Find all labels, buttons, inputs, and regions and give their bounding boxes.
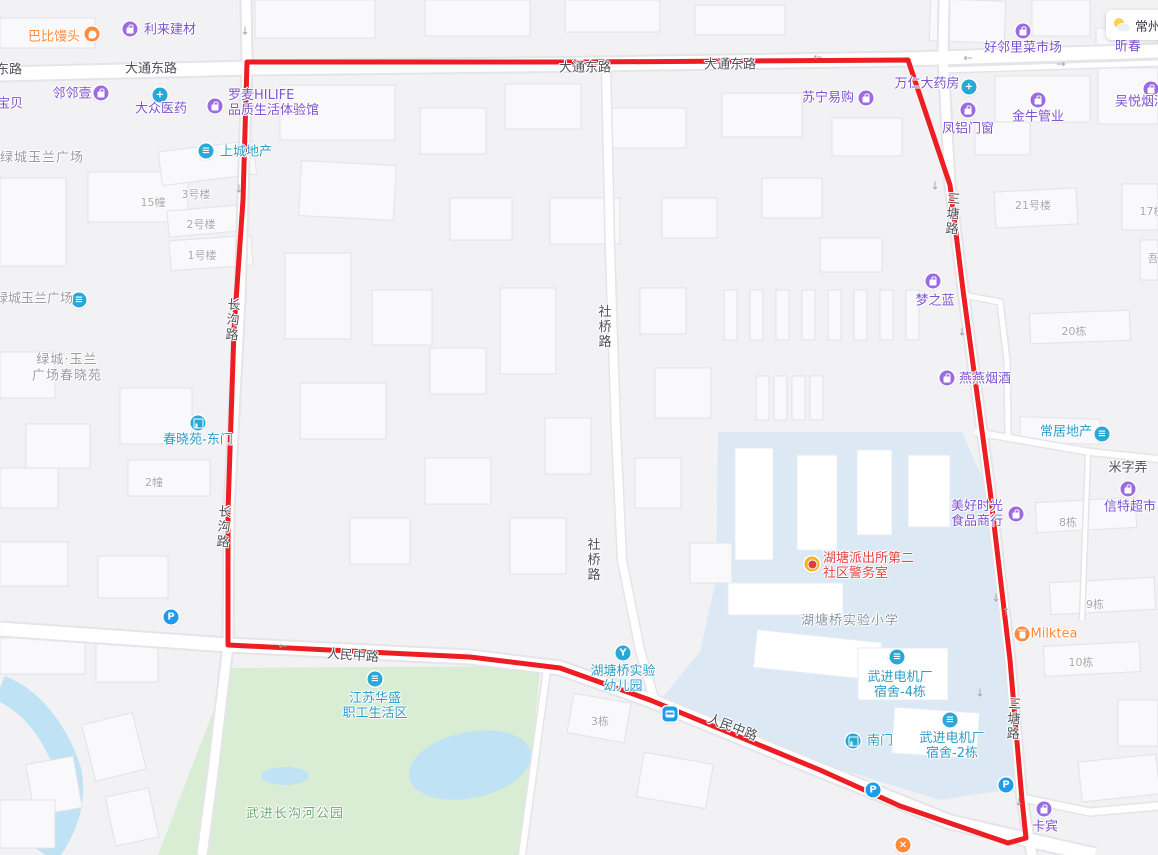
jinniu-guanye-icon[interactable] — [1031, 93, 1046, 108]
jiangsu-huasheng-icon[interactable]: ≡ — [368, 672, 383, 687]
road-label: 大通东路 — [704, 54, 756, 73]
sun-cloud-icon — [1114, 18, 1130, 32]
wanren-dayaofang-label[interactable]: 万仁大药房 — [894, 77, 959, 92]
closed-marker-icon[interactable]: × — [896, 838, 911, 853]
road-label: 人民中路 — [326, 643, 379, 666]
building-label: 1号楼 — [188, 247, 217, 263]
map-canvas[interactable]: 东路大通东路大通东路大通东路人民中路人民中路社桥路社桥路长沟路长沟路三塘路三塘路… — [0, 0, 1158, 855]
wujin-dianjichang-sushe4-icon[interactable]: ≡ — [890, 650, 905, 665]
yanyan-yanjiu-icon[interactable] — [940, 371, 955, 386]
hutangqiao-youeryuan-icon[interactable]: Y — [616, 646, 631, 661]
building-label: 8栋 — [1059, 514, 1077, 530]
road-label: 大通东路 — [559, 57, 611, 76]
meihao-shiguang-label[interactable]: 美好时光食品商行 — [951, 499, 1003, 529]
dazhong-yiyao-label[interactable]: 大众医药 — [135, 102, 187, 117]
road-label: 东路 — [0, 59, 22, 78]
haolinli-caishichang-icon[interactable] — [1016, 24, 1031, 39]
road-label: 三塘路 — [940, 191, 962, 237]
wujin-dianjichang-sushe2-icon[interactable]: ≡ — [943, 713, 958, 728]
building-label: 2号楼 — [187, 216, 216, 232]
kabin-label[interactable]: 卡宾 — [1032, 820, 1058, 835]
parking-south-icon[interactable]: P — [866, 783, 881, 798]
lvcheng-yulan-south-icon[interactable]: ≡ — [72, 293, 87, 308]
wanren-dayaofang-icon[interactable]: + — [962, 80, 977, 95]
mengzhilan-label[interactable]: 梦之蓝 — [915, 294, 954, 309]
haolinli-caishichang-label[interactable]: 好邻里菜市场 — [984, 41, 1062, 56]
building-label: 吾 — [1148, 250, 1158, 266]
oneway-arrow: → — [1056, 58, 1065, 71]
wujin-dianjichang-sushe2-label[interactable]: 武进电机厂宿舍-2栋 — [919, 731, 984, 761]
building-label: 3号楼 — [182, 186, 211, 202]
jinniu-guanye-label[interactable]: 金牛管业 — [1012, 110, 1064, 125]
luomai-hilife-icon[interactable] — [208, 99, 223, 114]
weather-widget[interactable]: 常州 — [1106, 10, 1158, 40]
parking-west-icon[interactable]: P — [164, 610, 179, 625]
kabin-icon[interactable] — [1037, 802, 1052, 817]
parking-southeast-icon[interactable]: P — [999, 778, 1014, 793]
building-label: 2幢 — [145, 474, 163, 490]
lilai-jiancai-icon[interactable] — [123, 22, 138, 37]
linlinyi-label[interactable]: 邻邻壹 — [52, 87, 91, 102]
oneway-arrow: ↓ — [240, 25, 249, 38]
nanmen-label[interactable]: 南门 — [867, 734, 893, 749]
meihao-shiguang-icon[interactable] — [1009, 507, 1024, 522]
oneway-arrow: ← — [813, 51, 822, 64]
baobei-label[interactable]: 宝贝 — [0, 97, 23, 112]
road-label: 人民中路 — [705, 708, 760, 744]
xinte-chaoshi-label[interactable]: 信特超市 — [1104, 500, 1156, 515]
babi-mantou-label[interactable]: 巴比馒头 — [28, 30, 80, 45]
chunxiaoyuan-dongmen-icon[interactable] — [191, 416, 206, 431]
babi-mantou-icon[interactable] — [85, 27, 100, 42]
building-label: 10栋 — [1069, 654, 1094, 670]
road-label: 长沟路 — [220, 297, 242, 343]
area-label: 广场春晓苑 — [32, 365, 102, 384]
changju-dichan-label[interactable]: 常居地产 — [1040, 425, 1092, 440]
shangcheng-dichan-icon[interactable]: ≡ — [199, 144, 214, 159]
fenglv-menchuang-icon[interactable] — [961, 103, 976, 118]
fenglv-menchuang-label[interactable]: 凤铝门窗 — [942, 122, 994, 137]
xinchun-partial-label[interactable]: 昕春 — [1115, 40, 1141, 55]
building-label: 9栋 — [1086, 596, 1104, 612]
building-label: 3栋 — [591, 713, 609, 729]
changju-dichan-icon[interactable]: ≡ — [1095, 427, 1110, 442]
hutangqiao-youeryuan-label[interactable]: 湖塘桥实验幼儿园 — [590, 664, 655, 694]
hutang-paichusuo-jingwushi-label[interactable]: 湖塘派出所第二社区警务室 — [823, 551, 914, 581]
road-label: 大通东路 — [125, 58, 177, 77]
wuyue-yanjiu-label[interactable]: 吴悦烟酒 — [1115, 95, 1158, 110]
suning-yigou-icon[interactable] — [859, 91, 874, 106]
wujin-dianjichang-sushe4-label[interactable]: 武进电机厂宿舍-4栋 — [867, 670, 932, 700]
milktea-label[interactable]: Milktea — [1030, 627, 1077, 642]
lilai-jiancai-label[interactable]: 利来建材 — [144, 23, 196, 38]
suning-yigou-label[interactable]: 苏宁易购 — [802, 91, 854, 106]
area-label: 武进长沟河公园 — [246, 803, 344, 822]
road-label: 三塘路 — [1001, 696, 1022, 742]
oneway-arrow: ↓ — [930, 180, 939, 193]
hutang-paichusuo-jingwushi-icon[interactable] — [805, 557, 820, 572]
xinte-chaoshi-icon[interactable] — [1121, 482, 1136, 497]
chunxiaoyuan-dongmen-label[interactable]: 春晓苑-东门 — [163, 433, 233, 448]
building-label: 15幢 — [141, 194, 166, 210]
road-label: 长沟路 — [211, 504, 233, 550]
oneway-arrow: ← — [278, 640, 287, 653]
shangcheng-dichan-label[interactable]: 上城地产 — [220, 145, 272, 160]
building-label: 17栋 — [1140, 203, 1158, 219]
area-label: 湖塘桥实验小学 — [801, 610, 899, 629]
dazhong-yiyao-icon[interactable]: + — [153, 88, 168, 103]
linlinyi-icon[interactable] — [94, 86, 109, 101]
oneway-arrow: ↑ — [1001, 606, 1010, 619]
oneway-arrow: ↓ — [957, 326, 966, 339]
oneway-arrow: ↓ — [975, 687, 984, 700]
nanmen-icon[interactable] — [846, 734, 861, 749]
oneway-arrow: ↓ — [991, 592, 1000, 605]
labels-layer: 东路大通东路大通东路大通东路人民中路人民中路社桥路社桥路长沟路长沟路三塘路三塘路… — [0, 0, 1158, 855]
building-label: 20栋 — [1062, 323, 1087, 339]
oneway-arrow: ← — [963, 52, 972, 65]
road-label: 社桥路 — [583, 538, 602, 583]
bus-stop-icon[interactable] — [663, 707, 678, 722]
jiangsu-huasheng-label[interactable]: 江苏华盛职工生活区 — [342, 691, 407, 721]
road-label: 社桥路 — [594, 305, 613, 350]
building-label: 21号楼 — [1015, 197, 1051, 213]
yanyan-yanjiu-label[interactable]: 燕燕烟酒 — [959, 372, 1011, 387]
lvcheng-yulan-south-label[interactable]: 绿城玉兰广场 — [0, 292, 73, 307]
oneway-arrow: ↓ — [234, 183, 243, 196]
area-label: 绿城·玉兰 — [36, 349, 97, 368]
weather-city: 常州 — [1135, 16, 1158, 35]
mengzhilan-icon[interactable] — [926, 274, 941, 289]
road-label: 米字弄 — [1108, 457, 1147, 476]
area-label: 绿城玉兰广场 — [0, 147, 84, 166]
oneway-arrow: ↓ — [1014, 796, 1023, 809]
luomai-hilife-label[interactable]: 罗麦HILIFE品质生活体验馆 — [228, 88, 319, 118]
milktea-icon[interactable] — [1015, 627, 1030, 642]
